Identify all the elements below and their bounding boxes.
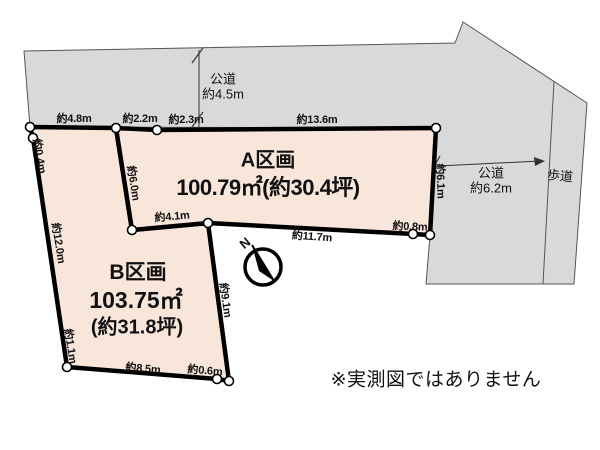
vertex-marker <box>204 219 213 228</box>
vertex-marker <box>153 126 162 135</box>
dim-label-8-5m: 約8.5m <box>125 359 161 378</box>
dim-label-6-1m: 約6.1m <box>432 163 449 199</box>
dim-label-4-1m: 約4.1m <box>154 207 190 226</box>
plot-a-area: 100.79㎡(約30.4坪) <box>176 170 359 202</box>
dim-label-13-6m: 約13.6m <box>297 111 338 127</box>
right-road-width: 約6.2m <box>470 181 512 196</box>
vertex-marker <box>128 226 137 235</box>
sidewalk-label: 歩道 <box>546 167 573 185</box>
dim-label-4-8m: 約4.8m <box>56 110 91 126</box>
vertex-marker <box>26 123 35 132</box>
top-road-width: 約4.5m <box>202 87 244 102</box>
disclaimer-note: ※実測図ではありません <box>331 365 542 392</box>
top-road-name: 公道 <box>202 72 244 87</box>
land-plot-diagram: 約4.8m 約2.2m 約2.3m 約13.6m 約0.4m 約12.0m 約1… <box>0 0 600 450</box>
vertex-marker <box>225 377 234 386</box>
plot-b-area-tsubo: (約31.8坪) <box>91 311 183 340</box>
dim-label-2-2m: 約2.2m <box>122 110 157 126</box>
right-road-label: 公道 約6.2m <box>470 166 512 197</box>
dim-label-0-6m: 約0.6m <box>187 361 223 380</box>
dim-label-11-7m: 約11.7m <box>291 227 332 246</box>
right-road-name: 公道 <box>470 166 512 181</box>
plot-a-name: A区画 <box>241 144 295 173</box>
dim-label-2-3m: 約2.3m <box>168 111 203 127</box>
compass-icon <box>245 245 281 285</box>
top-road-label: 公道 約4.5m <box>202 72 244 103</box>
dim-label-0-8m: 約0.8m <box>392 217 428 234</box>
vertex-marker <box>112 124 121 133</box>
vertex-marker <box>432 124 441 133</box>
